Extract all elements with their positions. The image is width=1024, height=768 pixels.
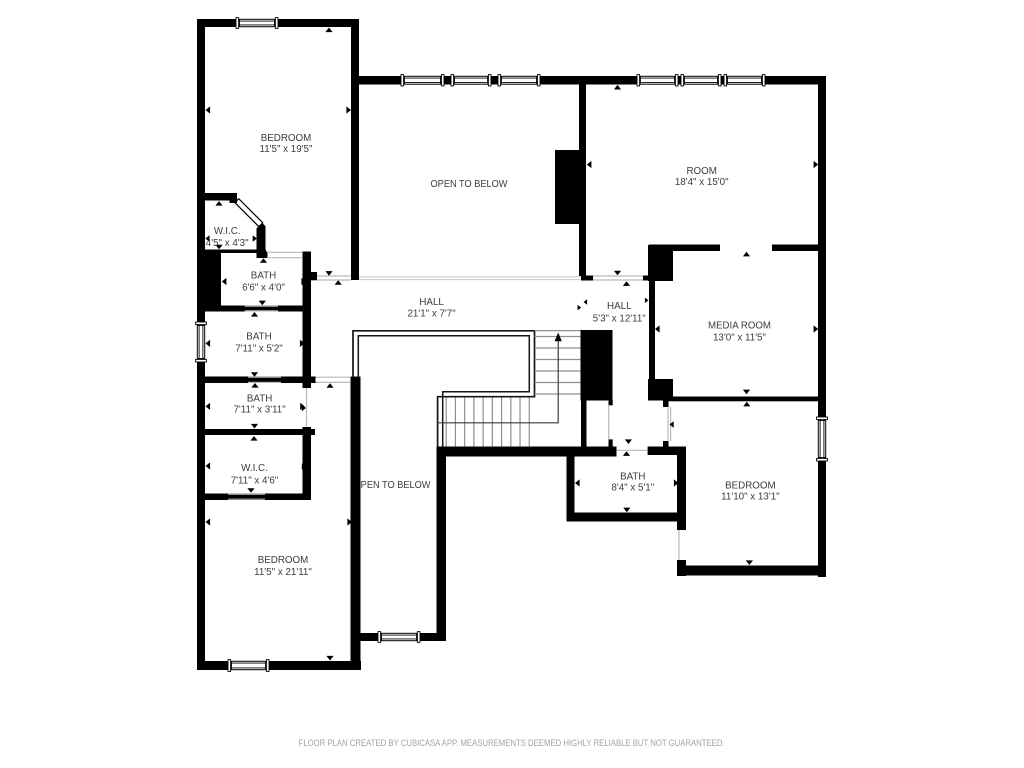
svg-text:5'3" x 12'11": 5'3" x 12'11" [593,313,647,324]
svg-text:11'5" x 21'11": 11'5" x 21'11" [254,567,312,578]
svg-text:HALL: HALL [419,297,444,308]
svg-text:7'11" x 4'6": 7'11" x 4'6" [231,475,279,486]
svg-text:BEDROOM: BEDROOM [261,133,312,144]
svg-text:W.I.C.: W.I.C. [241,463,268,474]
svg-text:W.I.C.: W.I.C. [214,226,241,237]
svg-text:18'4" x 15'0": 18'4" x 15'0" [675,177,729,188]
svg-text:OPEN TO BELOW: OPEN TO BELOW [354,480,432,491]
svg-text:21'1" x 7'7": 21'1" x 7'7" [407,309,456,320]
svg-text:6'6" x 4'0": 6'6" x 4'0" [242,283,285,294]
svg-text:8'4" x 5'1": 8'4" x 5'1" [611,483,654,494]
svg-text:BATH: BATH [620,472,645,483]
svg-text:BEDROOM: BEDROOM [258,555,309,566]
svg-text:BATH: BATH [251,270,276,281]
svg-text:ROOM: ROOM [686,166,716,177]
svg-text:BATH: BATH [246,331,271,342]
svg-text:11'10" x 13'1": 11'10" x 13'1" [721,492,780,503]
svg-text:13'0" x 11'5": 13'0" x 11'5" [713,333,767,344]
svg-text:7'11" x 3'11": 7'11" x 3'11" [233,405,286,416]
svg-text:BATH: BATH [247,394,272,405]
svg-text:4'5" x 4'3": 4'5" x 4'3" [206,238,249,249]
svg-text:FLOOR PLAN CREATED BY CUBICASA: FLOOR PLAN CREATED BY CUBICASA APP. MEAS… [299,738,725,748]
svg-text:11'5" x 19'5": 11'5" x 19'5" [259,144,313,155]
svg-text:BEDROOM: BEDROOM [725,481,776,492]
svg-text:7'11" x 5'2": 7'11" x 5'2" [235,343,283,354]
svg-text:OPEN TO BELOW: OPEN TO BELOW [431,179,509,190]
svg-text:MEDIA ROOM: MEDIA ROOM [708,321,771,332]
svg-text:HALL: HALL [607,301,632,312]
